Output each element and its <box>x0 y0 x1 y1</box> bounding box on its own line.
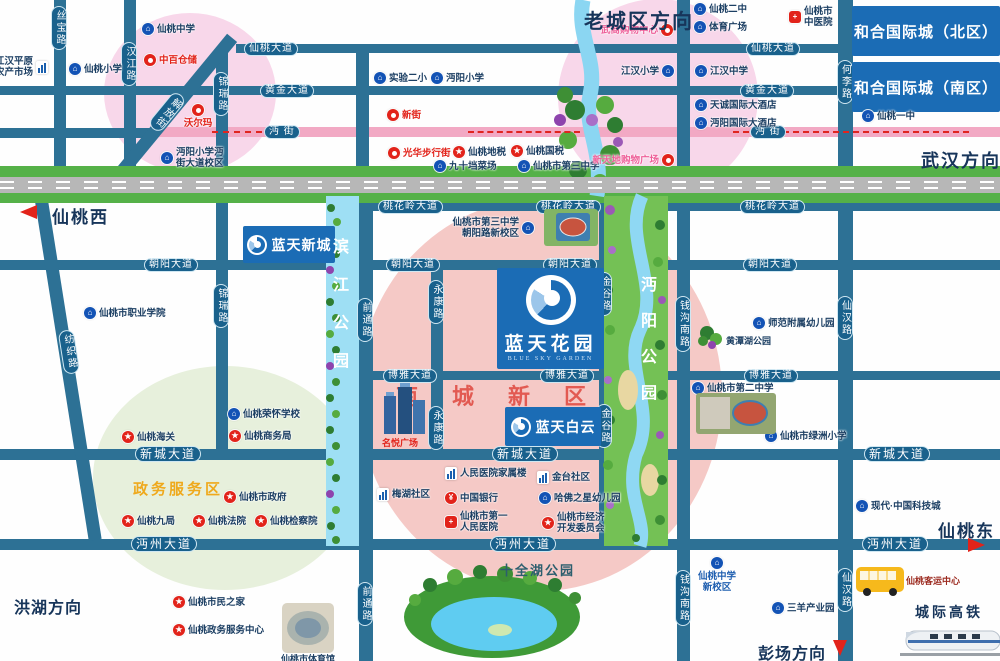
school-icon: ⌂ <box>518 160 530 172</box>
project-title: 蓝天花园 <box>504 329 596 356</box>
poi-mianyang-primary: 沔阳小学 <box>446 73 484 84</box>
shop-icon <box>387 109 399 121</box>
poi-xiantao-procuratorate: 仙桃检察院 <box>270 516 318 527</box>
poi-economic-development-committee: 仙桃市经济开发委员会 <box>557 512 605 534</box>
jinrui-road-label: 锦瑞路 <box>213 284 229 328</box>
poi-label-line: 仙桃地税 <box>468 147 506 158</box>
shop-icon <box>192 104 204 116</box>
taohualing-avenue-label: 桃花岭大道 <box>536 200 601 214</box>
label-nancheng-new-district: 南城新区 <box>396 379 620 411</box>
poi-label-line: 沔阳小学沔 <box>176 147 224 158</box>
poi-xiantao-local-tax: 仙桃地税 <box>468 147 506 158</box>
poi-xiantao-high-school-new-campus: 仙桃中学新校区 <box>672 571 762 593</box>
poi-xiantao-no2-high-school: 仙桃二中 <box>709 4 747 15</box>
star-icon: ★ <box>173 624 185 636</box>
huangjin-avenue-label: 黄金大道 <box>260 84 314 98</box>
poi-zhongbai-warehouse: 中百仓储 <box>159 55 197 66</box>
poi-label-line: 街大道校区 <box>176 158 224 169</box>
school-icon: ⌂ <box>539 492 551 504</box>
poi-label-line: 现代·中国科技城 <box>871 501 941 512</box>
poi-sports-plaza: 体育广场 <box>709 22 747 33</box>
poi-label-line: 仙桃中学 <box>672 571 762 582</box>
lantian-huayuan: 蓝天花园BLUE SKY GARDEN <box>497 268 604 369</box>
poi-label-line: 体育广场 <box>709 22 747 33</box>
poi-label-line: 哈佛之星幼儿园 <box>554 493 621 504</box>
school-icon: ⌂ <box>692 382 704 394</box>
poi-xiantao-ronghuai-school: 仙桃荣怀学校 <box>243 409 300 420</box>
poi-shiyan-no2-primary: 实验二小 <box>389 73 427 84</box>
building-icon <box>36 61 48 74</box>
yongkang-road-label: 永康路 <box>428 280 444 324</box>
taohualing-avenue-label: 桃花岭大道 <box>378 200 443 214</box>
project-subtitle: BLUE SKY GARDEN <box>508 356 593 362</box>
hospital-icon: + <box>445 516 457 528</box>
poi-label-line: 人民医院家属楼 <box>460 468 527 479</box>
poi-meihu-community: 梅湖社区 <box>392 489 430 500</box>
xiantao-avenue-label: 仙桃大道 <box>746 42 800 56</box>
direction-old-town: 老城区方向 <box>584 5 694 34</box>
poi-label-line: 仙桃政务服务中心 <box>188 625 264 636</box>
qiantong-road-label: 前通路 <box>357 582 373 626</box>
label-stadium: 仙桃市体育馆 <box>281 652 335 661</box>
hehe-international-south: 和合国际城（南区） <box>852 62 1000 112</box>
poi-label-line: 仙桃九局 <box>137 516 175 527</box>
star-icon: ★ <box>122 515 134 527</box>
star-icon: ★ <box>224 491 236 503</box>
poi-label-line: 三羊产业园 <box>787 603 835 614</box>
blue-sky-logo-icon <box>247 235 267 255</box>
poi-xiantao-lvzhou-primary: 仙桃市绿洲小学 <box>780 431 847 442</box>
poi-label-line: 梅湖社区 <box>392 489 430 500</box>
poi-label-line: 江汉中学 <box>710 66 748 77</box>
hehe-international-north: 和合国际城（北区） <box>852 6 1000 56</box>
mianzhou-avenue-label: 沔州大道 <box>490 536 556 552</box>
poi-xiantao-customs: 仙桃海关 <box>137 432 175 443</box>
west-arrow-icon <box>20 205 37 219</box>
poi-label-line: 仙桃二中 <box>709 4 747 15</box>
school-icon: ⌂ <box>662 65 674 77</box>
poi-xinjie: 新街 <box>402 110 421 121</box>
star-icon: ★ <box>229 430 241 442</box>
north-stub-road <box>356 44 369 178</box>
poi-label-line: 仙桃市第二中学 <box>707 383 774 394</box>
poi-label-line: 仙桃市职业学院 <box>99 308 166 319</box>
poi-xiantao-gov-service-center: 仙桃政务服务中心 <box>188 625 264 636</box>
poi-xiantao-tcm-hospital: 仙桃市中医院 <box>804 6 833 28</box>
poi-mianyang-intl-hotel: 沔阳国际大酒店 <box>710 118 777 129</box>
lantian-xincheng: 蓝天新城 <box>243 226 335 263</box>
poi-sanyang-industrial-park: 三羊产业园 <box>787 603 835 614</box>
building-icon <box>377 488 389 501</box>
school-icon: ⌂ <box>695 65 707 77</box>
poi-label-line: 实验二小 <box>389 73 427 84</box>
poi-label-line: 仙桃检察院 <box>270 516 318 527</box>
hospital-icon: + <box>789 11 801 23</box>
direction-honghu: 洪湖方向 <box>14 594 82 618</box>
train-image <box>900 631 1000 656</box>
chaoyang-avenue-label: 朝阳大道 <box>743 258 797 272</box>
poi-label-line: 开发委员会 <box>557 523 605 534</box>
school-icon: ⌂ <box>84 307 96 319</box>
lantian-baiyun: 蓝天白云 <box>505 407 601 446</box>
poi-xiantao-no1-peoples-hospital: 仙桃市第一人民医院 <box>460 511 508 533</box>
poi-xiantao-no1-high-school: 仙桃一中 <box>877 111 915 122</box>
bus-image <box>856 567 904 596</box>
poi-jianghan-primary-school: 江汉小学 <box>621 66 659 77</box>
school-icon: ⌂ <box>431 72 443 84</box>
label-binjiang-park: 滨江公园 <box>326 238 350 390</box>
poi-label-line: 仙桃市第三中学 <box>533 161 600 172</box>
poi-label-line: 沃尔玛 <box>153 118 243 129</box>
poi-xiantao-citizens-home: 仙桃市民之家 <box>188 597 245 608</box>
chaoyang-avenue-label: 朝阳大道 <box>386 258 440 272</box>
poi-label-line: 仙桃一中 <box>877 111 915 122</box>
direction-wuhan: 武汉方向 <box>921 147 1000 173</box>
exit-xiantao-west: 仙桃西 <box>52 203 109 228</box>
poi-label-line: 沔阳国际大酒店 <box>710 118 777 129</box>
poi-tiancheng-intl-hotel: 天诚国际大酒店 <box>710 100 777 111</box>
school-icon: ⌂ <box>862 110 874 122</box>
school-icon: ⌂ <box>522 222 534 234</box>
label-shiquan-lake-park: 十全湖公园 <box>500 560 575 579</box>
blue-sky-logo-icon <box>511 417 531 437</box>
poi-no3-middle-school-chaoyang-campus: 仙桃市第三中学朝阳路新校区 <box>452 217 519 239</box>
poi-label-line: 仙桃国税 <box>526 146 564 157</box>
blue-sky-logo-icon <box>526 275 576 325</box>
school-icon: ⌂ <box>753 317 765 329</box>
school-icon: ⌂ <box>711 557 723 569</box>
heli-road-label: 何李路 <box>837 60 853 104</box>
poi-xiantao-city-government: 仙桃市政府 <box>239 492 287 503</box>
shop-icon <box>388 147 400 159</box>
xincheng-avenue-label: 新城大道 <box>135 446 201 462</box>
exit-xiantao-east: 仙桃东 <box>938 517 995 542</box>
poi-peoples-hospital-staff-building: 人民医院家属楼 <box>460 468 527 479</box>
poi-bank-of-china: 中国银行 <box>460 493 498 504</box>
xincheng-avenue-label: 新城大道 <box>492 446 558 462</box>
school-icon: ⌂ <box>142 23 154 35</box>
poi-xiantao-middle-school: 仙桃中学 <box>157 24 195 35</box>
star-icon: ★ <box>122 431 134 443</box>
poi-label-line: 仙桃荣怀学校 <box>243 409 300 420</box>
poi-xiantao-primary-school: 仙桃小学 <box>84 64 122 75</box>
qiantong-road-label: 前通路 <box>357 298 373 342</box>
poi-label-line: 光华步行街 <box>403 148 451 159</box>
jinrui-road-label: 锦瑞路 <box>213 72 229 116</box>
poi-label-line: 仙桃市第一 <box>460 511 508 522</box>
qiangou-south-road-label: 钱沟南路 <box>675 296 691 352</box>
poi-label-line: 新天地购物广场 <box>592 155 659 166</box>
poi-label-line: 仙桃市绿洲小学 <box>780 431 847 442</box>
pengchang-arrow-icon <box>833 640 847 656</box>
poi-xiantao-national-tax: 仙桃国税 <box>526 146 564 157</box>
building-icon <box>537 471 549 484</box>
school-icon: ⌂ <box>772 602 784 614</box>
lantian-baiyun-label: 蓝天白云 <box>536 417 596 437</box>
poi-xiantao-vocational-college: 仙桃市职业学院 <box>99 308 166 319</box>
shop-icon <box>662 154 674 166</box>
poi-xiantao-commerce-bureau: 仙桃商务局 <box>244 431 292 442</box>
label-passenger-center: 仙桃客运中心 <box>906 574 960 587</box>
poi-label-line: 朝阳路新校区 <box>452 228 519 239</box>
poi-label-line: 新街 <box>402 110 421 121</box>
poi-xiantao-no3-middle-school: 仙桃市第三中学 <box>533 161 600 172</box>
label-mianyang-park: 沔阳公园 <box>634 276 658 420</box>
poi-label-line: 沔阳小学 <box>446 73 484 84</box>
poi-xiantao-court: 仙桃法院 <box>208 516 246 527</box>
poi-label-line: 人民医院 <box>460 522 508 533</box>
poi-label-line: 仙桃市民之家 <box>188 597 245 608</box>
boya-avenue-label: 博雅大道 <box>744 369 798 383</box>
poi-label-line: 新校区 <box>672 582 762 593</box>
poi-walmart: 沃尔玛 <box>153 118 243 129</box>
expressway-lane-marking <box>0 181 1000 183</box>
school-icon: ⌂ <box>228 408 240 420</box>
poi-label-line: 农产市场 <box>0 67 33 78</box>
poi-xintiandi-shopping-plaza: 新天地购物广场 <box>592 155 659 166</box>
school-icon: ⌂ <box>765 430 777 442</box>
xiantao-avenue-label: 仙桃大道 <box>244 42 298 56</box>
star-icon: ★ <box>542 517 554 529</box>
poi-label-line: 江汉平原 <box>0 56 33 67</box>
taohualing-avenue-label: 桃花岭大道 <box>740 200 805 214</box>
poi-label-line: 中国银行 <box>460 493 498 504</box>
bank-icon: ¥ <box>445 492 457 504</box>
poi-normal-school-kindergarten: 师范附属幼儿园 <box>768 318 835 329</box>
poi-label-line: 仙桃法院 <box>208 516 246 527</box>
poi-label-line: 中百仓储 <box>159 55 197 66</box>
poi-label-line: 仙桃市经济 <box>557 512 605 523</box>
hehe-international-north-label: 和合国际城（北区） <box>854 21 998 42</box>
mianjie-red-dashes <box>468 131 580 133</box>
poi-jiushidang-market: 九十垱菜场 <box>449 161 497 172</box>
poi-jintai-community: 金台社区 <box>552 472 590 483</box>
school-icon: ⌂ <box>161 152 173 164</box>
stadium-image <box>282 603 334 653</box>
lantian-xincheng-label: 蓝天新城 <box>272 235 332 255</box>
mianjie-street-label: 沔 街 <box>264 125 300 139</box>
poi-label-line: 仙桃市政府 <box>239 492 287 503</box>
poi-label-line: 金台社区 <box>552 472 590 483</box>
star-icon: ★ <box>453 146 465 158</box>
hanjiang-road-label: 汉江路 <box>121 42 137 86</box>
poi-label-line: 仙桃小学 <box>84 64 122 75</box>
poi-label-line: 仙桃市 <box>804 6 833 17</box>
xianhan-road-label: 仙汉路 <box>837 296 853 340</box>
school-icon: ⌂ <box>694 21 706 33</box>
poi-label-line: 中医院 <box>804 17 833 28</box>
huangjin-avenue-label: 黄金大道 <box>740 84 794 98</box>
mianzhou-avenue-label: 沔州大道 <box>131 536 197 552</box>
star-icon: ★ <box>511 145 523 157</box>
label-intercity-hsr: 城际高铁 <box>915 602 983 622</box>
school-icon: ⌂ <box>695 117 707 129</box>
star-icon: ★ <box>193 515 205 527</box>
poi-label-line: 仙桃市第三中学 <box>452 217 519 228</box>
label-huangtan-lake-park: 黄潭湖公园 <box>726 334 771 347</box>
yongkang-road-label: 永康路 <box>428 406 444 450</box>
poi-xiantao-no2-middle-school: 仙桃市第二中学 <box>707 383 774 394</box>
mianjie-red-dashes <box>212 131 262 133</box>
school-icon: ⌂ <box>694 3 706 15</box>
poi-label-line: 江汉小学 <box>621 66 659 77</box>
poi-guanghua-walking-street: 光华步行街 <box>403 148 451 159</box>
star-icon: ★ <box>255 515 267 527</box>
poi-label-line: 仙桃中学 <box>157 24 195 35</box>
mianzhou-avenue-label: 沔州大道 <box>862 536 928 552</box>
expressway <box>0 177 1000 193</box>
poi-label-line: 九十垱菜场 <box>449 161 497 172</box>
chaoyang-avenue-label: 朝阳大道 <box>144 258 198 272</box>
school-icon: ⌂ <box>856 500 868 512</box>
poi-xiantao-jiuju: 仙桃九局 <box>137 516 175 527</box>
xiantao-location-map: 仙桃大道仙桃大道黄金大道黄金大道沔 街沔 街桃花岭大道桃花岭大道桃花岭大道朝阳大… <box>0 0 1000 661</box>
expressway-lane-marking <box>0 187 1000 189</box>
poi-jianghan-middle-school: 江汉中学 <box>710 66 748 77</box>
poi-label-line: 天诚国际大酒店 <box>710 100 777 111</box>
poi-label-line: 仙桃海关 <box>137 432 175 443</box>
poi-label-line: 师范附属幼儿园 <box>768 318 835 329</box>
label-mingyue-plaza: 名悦广场 <box>382 436 418 449</box>
school-icon: ⌂ <box>69 63 81 75</box>
poi-label-line: 仙桃商务局 <box>244 431 292 442</box>
school-icon: ⌂ <box>695 99 707 111</box>
sibao-road-label: 丝宝路 <box>51 6 67 50</box>
poi-mianyang-primary-mianjie-campus: 沔阳小学沔街大道校区 <box>176 147 224 169</box>
hehe-international-south-label: 和合国际城（南区） <box>854 77 998 98</box>
poi-modern-china-tech-city: 现代·中国科技城 <box>871 501 941 512</box>
shop-icon <box>144 54 156 66</box>
label-gov-service-area: 政务服务区 <box>133 478 223 499</box>
building-icon <box>445 467 457 480</box>
poi-jianghan-plain-farm-market: 江汉平原农产市场 <box>0 56 33 78</box>
school-icon: ⌂ <box>434 160 446 172</box>
xianhan-road-label: 仙汉路 <box>837 568 853 612</box>
school-icon: ⌂ <box>374 72 386 84</box>
east-arrow-icon <box>968 538 985 552</box>
poi-harvard-star-kindergarten: 哈佛之星幼儿园 <box>554 493 621 504</box>
star-icon: ★ <box>173 596 185 608</box>
xincheng-avenue-label: 新城大道 <box>864 446 930 462</box>
direction-pengchang: 彭场方向 <box>758 640 826 661</box>
